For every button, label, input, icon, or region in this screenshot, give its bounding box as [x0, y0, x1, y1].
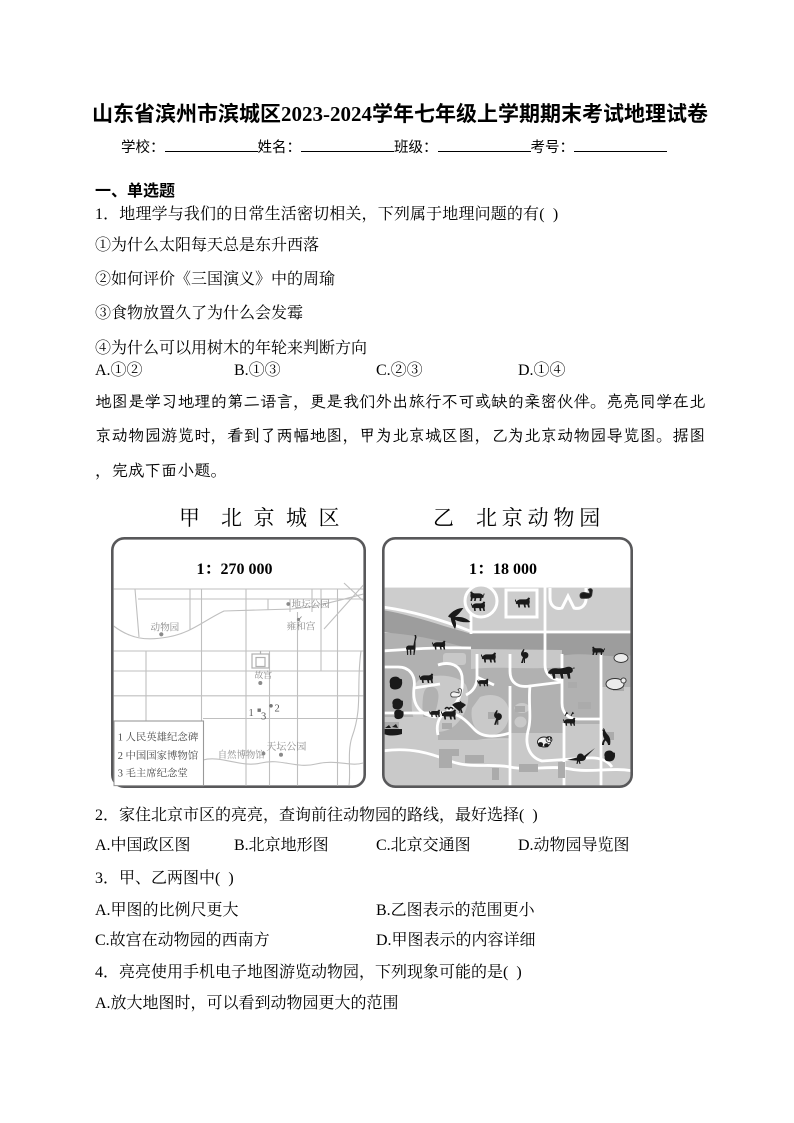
svg-text:自然博物馆: 自然博物馆	[218, 749, 266, 761]
svg-text:动物园: 动物园	[151, 622, 180, 634]
svg-text:3: 3	[261, 712, 266, 723]
svg-text:1 人民英雄纪念碑: 1 人民英雄纪念碑	[118, 731, 199, 744]
svg-text:地坛公园: 地坛公园	[292, 598, 331, 610]
svg-text:2: 2	[275, 704, 280, 715]
svg-text:天坛公园: 天坛公园	[266, 740, 306, 753]
svg-text:1: 1	[249, 708, 254, 719]
svg-text:2 中国国家博物馆: 2 中国国家博物馆	[118, 749, 199, 762]
svg-text:3 毛主席纪念堂: 3 毛主席纪念堂	[118, 767, 188, 780]
svg-text:雍和宫: 雍和宫	[287, 620, 316, 632]
svg-text:故宫: 故宫	[255, 669, 273, 680]
